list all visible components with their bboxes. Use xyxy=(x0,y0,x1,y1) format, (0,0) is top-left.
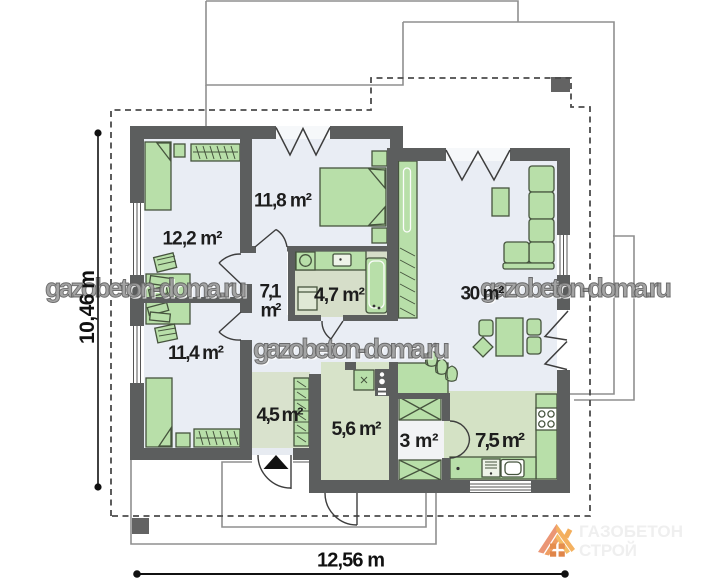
svg-text:7,1: 7,1 xyxy=(260,282,282,303)
svg-text:m²: m² xyxy=(261,301,282,322)
svg-text:30 m²: 30 m² xyxy=(461,284,505,305)
svg-text:3 m²: 3 m² xyxy=(400,430,440,452)
svg-text:4,5 m²: 4,5 m² xyxy=(257,404,305,426)
svg-text:11,8 m²: 11,8 m² xyxy=(254,191,312,212)
svg-text:10,46 m: 10,46 m xyxy=(76,270,99,344)
svg-text:5,6 m²: 5,6 m² xyxy=(332,418,383,440)
svg-text:СТРОЙ: СТРОЙ xyxy=(579,541,637,560)
svg-text:11,4 m²: 11,4 m² xyxy=(168,343,224,364)
svg-text:12,2 m²: 12,2 m² xyxy=(163,229,223,250)
svg-text:7,5 m²: 7,5 m² xyxy=(475,429,525,452)
svg-text:ГАЗОБЕТОН: ГАЗОБЕТОН xyxy=(579,522,683,541)
svg-text:gazobeton-doma.ru: gazobeton-doma.ru xyxy=(480,273,672,303)
svg-text:gazobeton-doma.ru: gazobeton-doma.ru xyxy=(253,333,450,364)
svg-text:4,7 m²: 4,7 m² xyxy=(314,284,366,306)
svg-text:12,56 m: 12,56 m xyxy=(317,550,385,572)
